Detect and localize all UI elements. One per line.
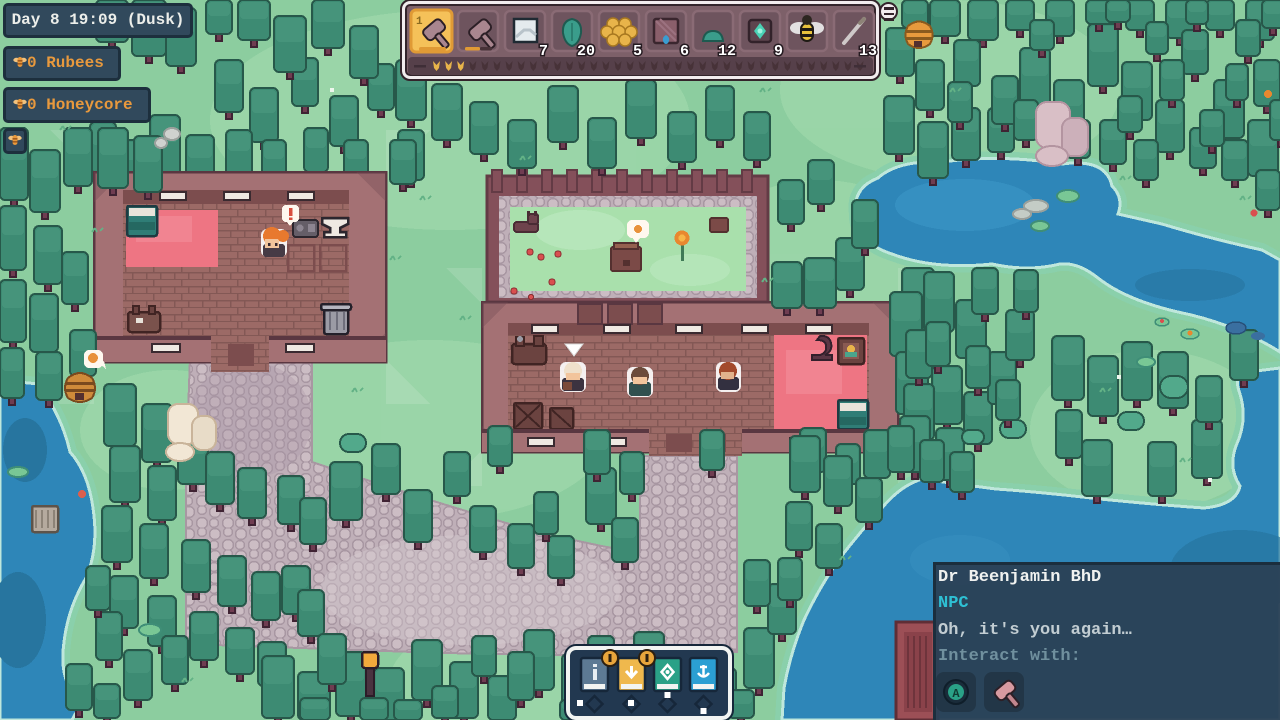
svg-text:A: A xyxy=(952,687,960,701)
svg-text:1: 1 xyxy=(416,16,423,28)
